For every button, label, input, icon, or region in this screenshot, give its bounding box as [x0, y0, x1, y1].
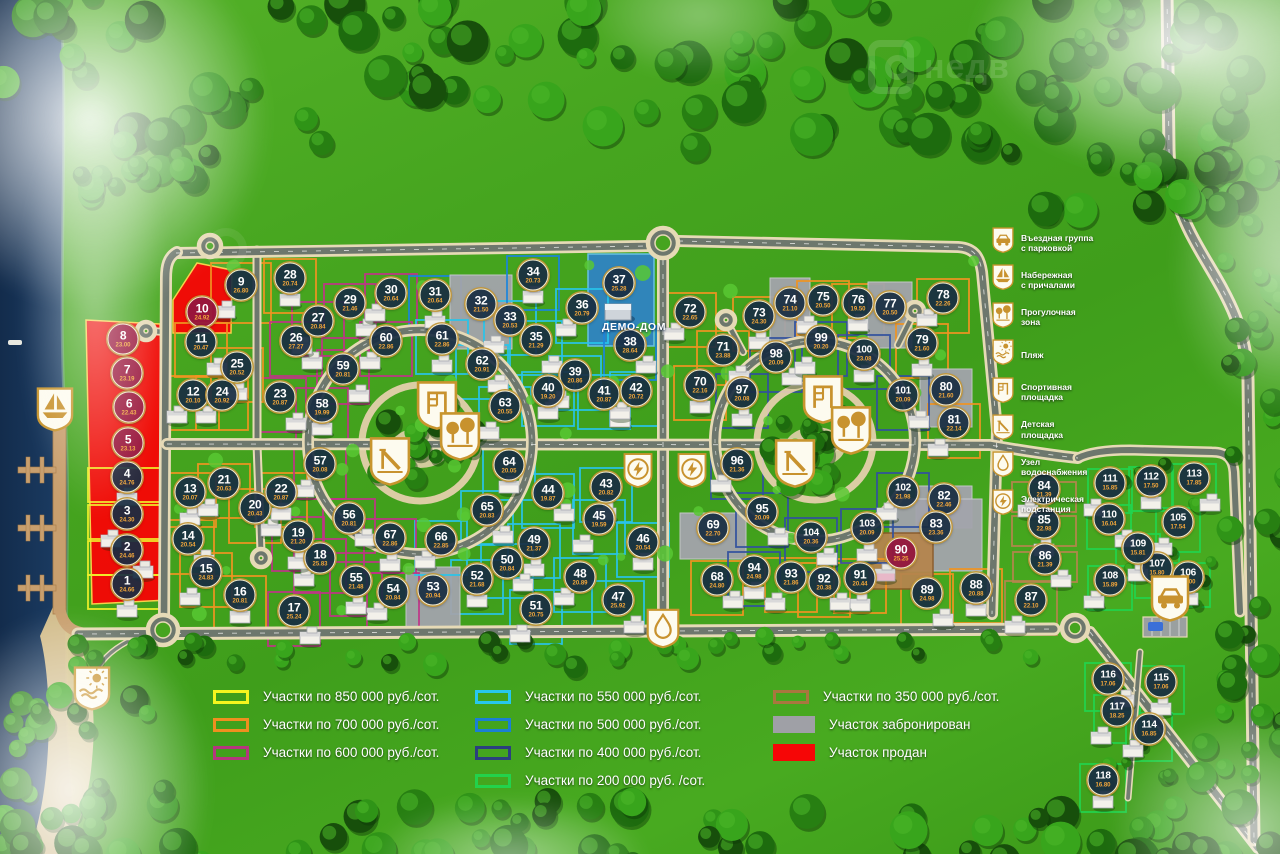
price-legend-column-2: Участки по 550 000 руб./сот.Участки по 5… [475, 688, 705, 789]
legend-label: Участок продан [829, 745, 927, 760]
legend-label: Участки по 550 000 руб./сот. [525, 689, 701, 704]
facility-legend-item: Спортивная площадка [992, 377, 1093, 408]
facility-legend-label: Узел водоснабжения [1021, 457, 1087, 477]
facility-legend-label: Спортивная площадка [1021, 382, 1072, 402]
legend-swatch [475, 718, 511, 732]
legend-label: Участки по 850 000 руб./сот. [263, 689, 439, 704]
facility-legend-label: Электрическая подстанция [1021, 494, 1084, 514]
price-legend-item: Участки по 350 000 руб./сот. [773, 688, 999, 705]
legend-label: Участки по 200 000 руб. /сот. [525, 773, 705, 788]
facility-legend-item: Детская площадка [992, 414, 1093, 445]
beach-icon [992, 339, 1014, 370]
facility-legend-item: Электрическая подстанция [992, 489, 1093, 520]
legend-label: Участки по 600 000 руб./сот. [263, 745, 439, 760]
price-legend-item: Участки по 700 000 руб./сот. [213, 716, 439, 733]
legend-swatch [213, 690, 249, 704]
masterplan-map: 124.66224.46324.30424.76523.13622.43723.… [0, 0, 1280, 854]
entrance-icon [992, 227, 1014, 258]
power-icon [992, 489, 1014, 520]
legend-swatch [213, 718, 249, 732]
facility-legend-label: Детская площадка [1021, 419, 1063, 439]
legend-swatch [773, 744, 815, 761]
facility-legend-item: Прогулочная зона [992, 302, 1093, 333]
price-legend-item: Участки по 550 000 руб./сот. [475, 688, 705, 705]
legend-label: Участки по 500 000 руб./сот. [525, 717, 701, 732]
facility-legend-label: Прогулочная зона [1021, 307, 1076, 327]
price-legend-item: Участки по 200 000 руб. /сот. [475, 772, 705, 789]
facility-legend: Въездная группа с парковкойНабережная с … [992, 227, 1093, 520]
facility-legend-label: Пляж [1021, 350, 1044, 360]
legend-label: Участок забронирован [829, 717, 971, 732]
facility-legend-item: Въездная группа с парковкой [992, 227, 1093, 258]
legend-label: Участки по 350 000 руб./сот. [823, 689, 999, 704]
price-legend-item: Участки по 850 000 руб./сот. [213, 688, 439, 705]
legend-label: Участки по 700 000 руб./сот. [263, 717, 439, 732]
facility-legend-item: Набережная с причалами [992, 264, 1093, 295]
price-legend-column-3: Участки по 350 000 руб./сот.Участок забр… [773, 688, 999, 761]
price-legend-column-1: Участки по 850 000 руб./сот.Участки по 7… [213, 688, 439, 761]
price-legend-item: Участки по 500 000 руб./сот. [475, 716, 705, 733]
legend-swatch [475, 746, 511, 760]
legend-swatch [475, 690, 511, 704]
water-icon [992, 451, 1014, 482]
walk-icon [992, 302, 1014, 333]
facility-legend-item: Узел водоснабжения [992, 451, 1093, 482]
legend-swatch [773, 716, 815, 733]
legend-swatch [213, 746, 249, 760]
facility-legend-label: Набережная с причалами [1021, 270, 1075, 290]
legend-label: Участки по 400 000 руб./сот. [525, 745, 701, 760]
price-legend-item: Участки по 600 000 руб./сот. [213, 744, 439, 761]
legend-swatch [773, 690, 809, 704]
demo-house-label: ДЕМО-ДОМ [602, 321, 666, 333]
marina-icon [992, 264, 1014, 295]
sport-icon [992, 377, 1014, 408]
price-legend-item: Участки по 400 000 руб./сот. [475, 744, 705, 761]
facility-legend-item: Пляж [992, 339, 1093, 370]
legend-swatch [475, 774, 511, 788]
price-legend-item: Участок продан [773, 744, 999, 761]
play-icon [992, 414, 1014, 445]
price-legend-item: Участок забронирован [773, 716, 999, 733]
facility-legend-label: Въездная группа с парковкой [1021, 233, 1093, 253]
